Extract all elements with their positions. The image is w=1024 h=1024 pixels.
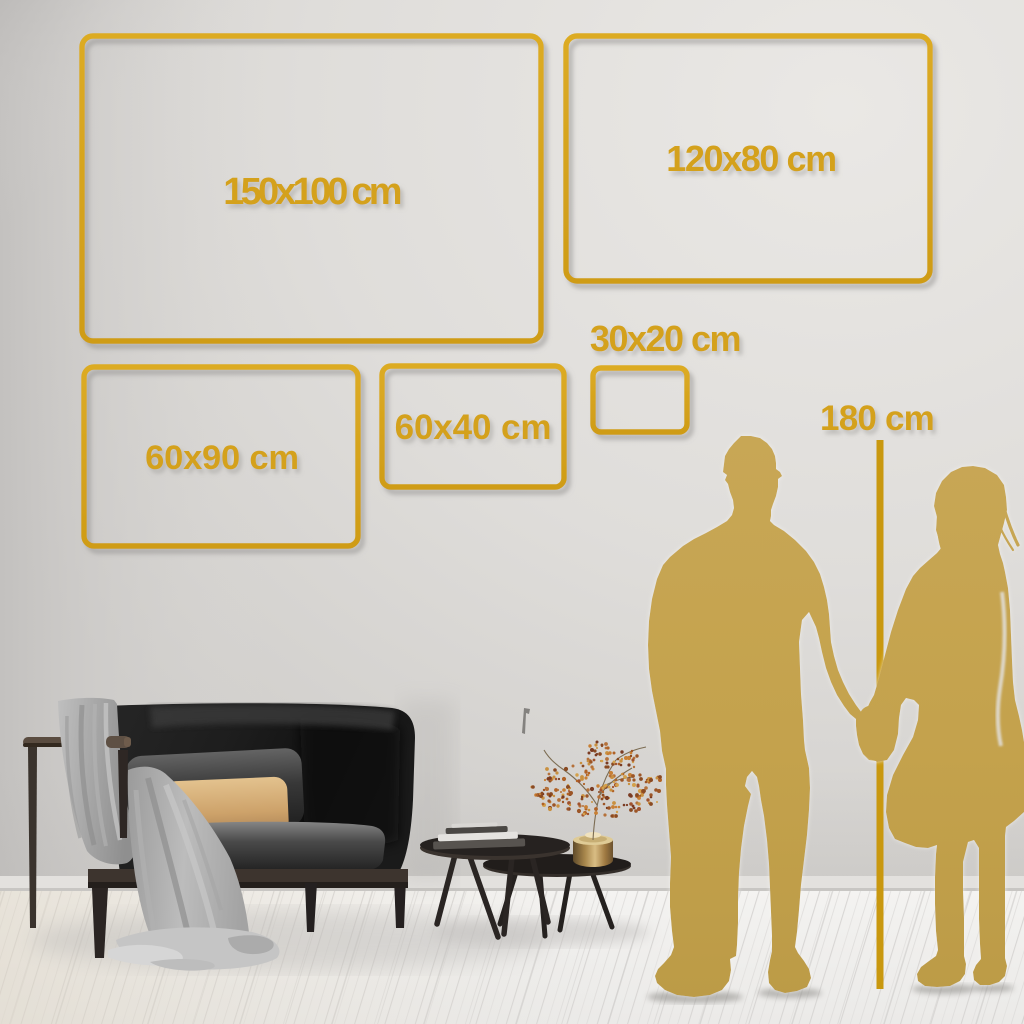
svg-text:120x80 cm: 120x80 cm	[666, 138, 836, 179]
svg-text:60x40 cm: 60x40 cm	[395, 408, 552, 447]
svg-text:150x100 cm: 150x100 cm	[223, 171, 400, 213]
svg-text:30x20 cm: 30x20 cm	[590, 318, 740, 359]
svg-text:60x90 cm: 60x90 cm	[145, 439, 299, 477]
svg-text:180 cm: 180 cm	[820, 399, 934, 438]
